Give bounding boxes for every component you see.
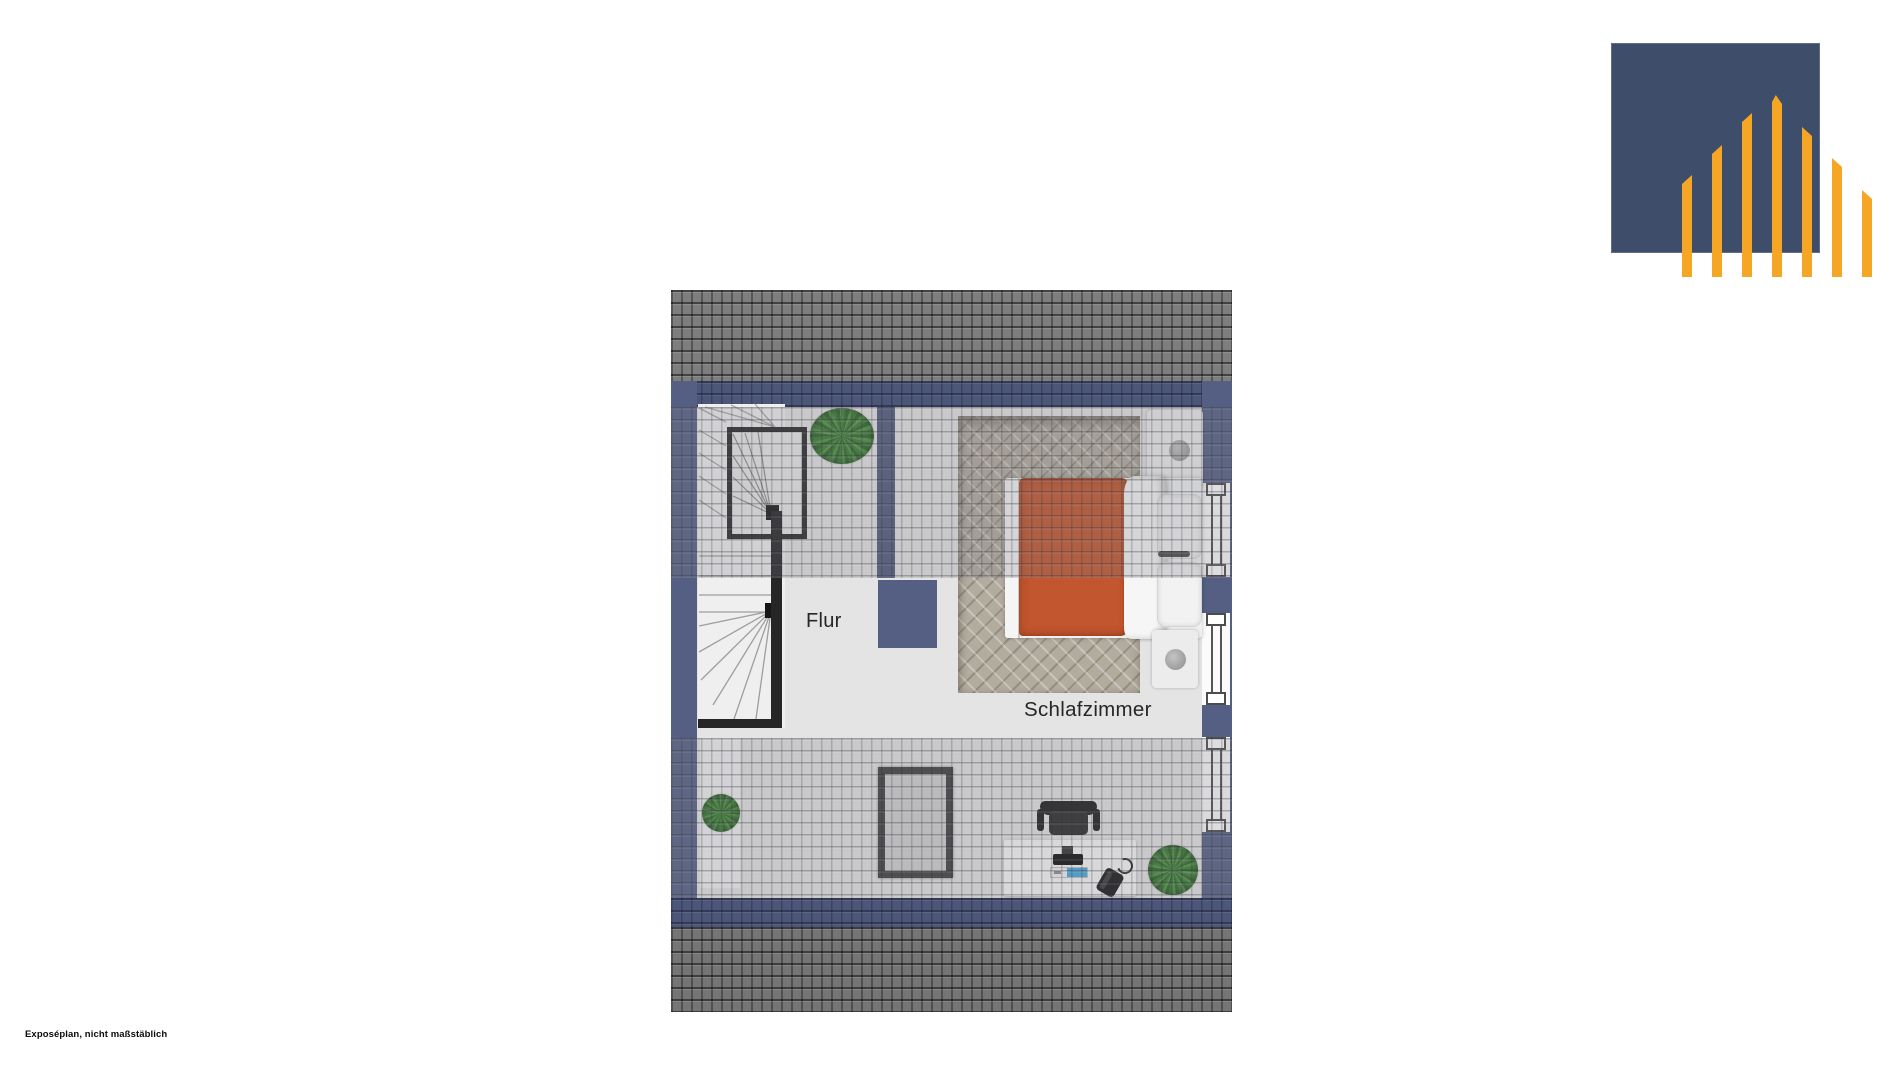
chair-armrest — [1093, 809, 1100, 831]
window-glazing — [1211, 495, 1222, 565]
logo-bar — [1742, 113, 1752, 277]
page: Flur Schlafzimmer Exposéplan, nicht maßs… — [0, 0, 1900, 1068]
window-glazing — [1211, 749, 1222, 820]
window-icon — [1202, 737, 1230, 832]
wall-left — [671, 381, 697, 927]
logo-bar — [1682, 175, 1692, 277]
potted-plant-icon — [702, 794, 740, 832]
roof-bottom — [671, 927, 1232, 1012]
logo-bar — [1712, 145, 1722, 277]
shelf-icon — [1158, 551, 1190, 557]
bed-footboard — [1005, 478, 1020, 638]
keyboard-icon — [1050, 867, 1088, 878]
window-sill — [1206, 692, 1226, 705]
office-chair-icon — [1037, 801, 1100, 835]
wall-pillar — [878, 580, 937, 648]
wall-bedroom-partition — [877, 407, 895, 578]
logo-bar — [1832, 158, 1842, 277]
pillow-icon — [1157, 562, 1202, 627]
chair-armrest — [1037, 809, 1044, 831]
chair-seat — [1049, 811, 1088, 835]
potted-plant-icon — [1148, 845, 1198, 895]
room-label-schlafzimmer: Schlafzimmer — [1024, 698, 1152, 722]
bed-icon — [1005, 478, 1202, 638]
window-sill — [1206, 564, 1226, 577]
monitor-stand — [1062, 846, 1073, 854]
window-icon — [1202, 483, 1230, 577]
potted-plant-icon — [810, 408, 874, 464]
room-label-flur: Flur — [806, 610, 842, 633]
floorplan: Flur Schlafzimmer — [671, 290, 1232, 1012]
window-sill — [1206, 819, 1226, 832]
keyboard-accent — [1067, 868, 1087, 877]
lamp-icon — [1169, 440, 1190, 461]
logo-bar — [1862, 190, 1872, 277]
company-logo — [1611, 43, 1873, 277]
window-icon — [1202, 613, 1230, 705]
pillow-icon — [1157, 494, 1202, 559]
roof-top — [671, 290, 1232, 381]
keyboard-keys — [1054, 871, 1061, 874]
monitor-icon — [1053, 854, 1083, 865]
staircase-icon — [697, 400, 809, 730]
bed-duvet — [1019, 478, 1129, 636]
logo-bar — [1802, 127, 1812, 277]
logo-bar — [1772, 95, 1782, 277]
wall-band-bottom — [671, 898, 1232, 927]
nightstand-with-lamp-icon — [1152, 630, 1198, 688]
window-glazing — [1211, 625, 1222, 693]
disclaimer-text: Exposéplan, nicht maßstäblich — [25, 1029, 167, 1040]
roof-window-frame-icon — [878, 767, 953, 878]
lamp-icon — [1165, 649, 1186, 670]
